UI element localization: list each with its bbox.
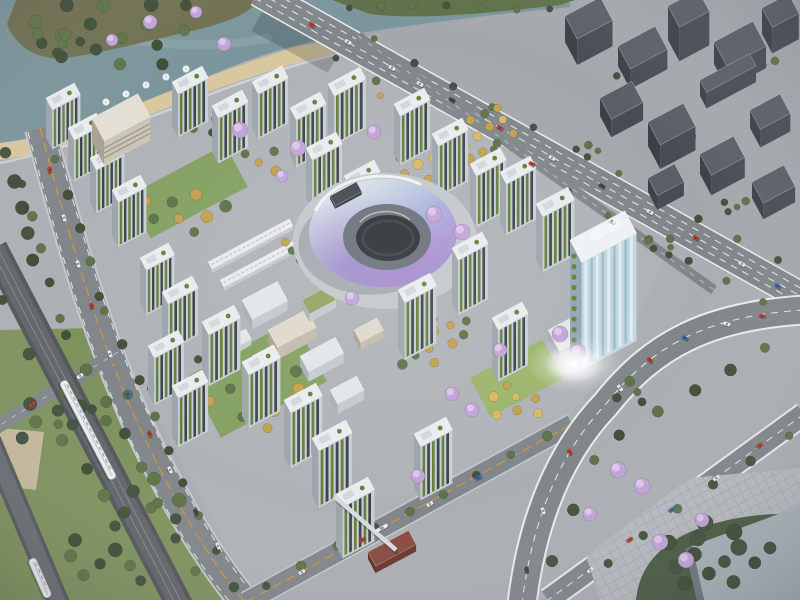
render-canvas <box>0 0 800 600</box>
vignette-overlay <box>0 0 800 600</box>
aerial-masterplan-render <box>0 0 800 600</box>
